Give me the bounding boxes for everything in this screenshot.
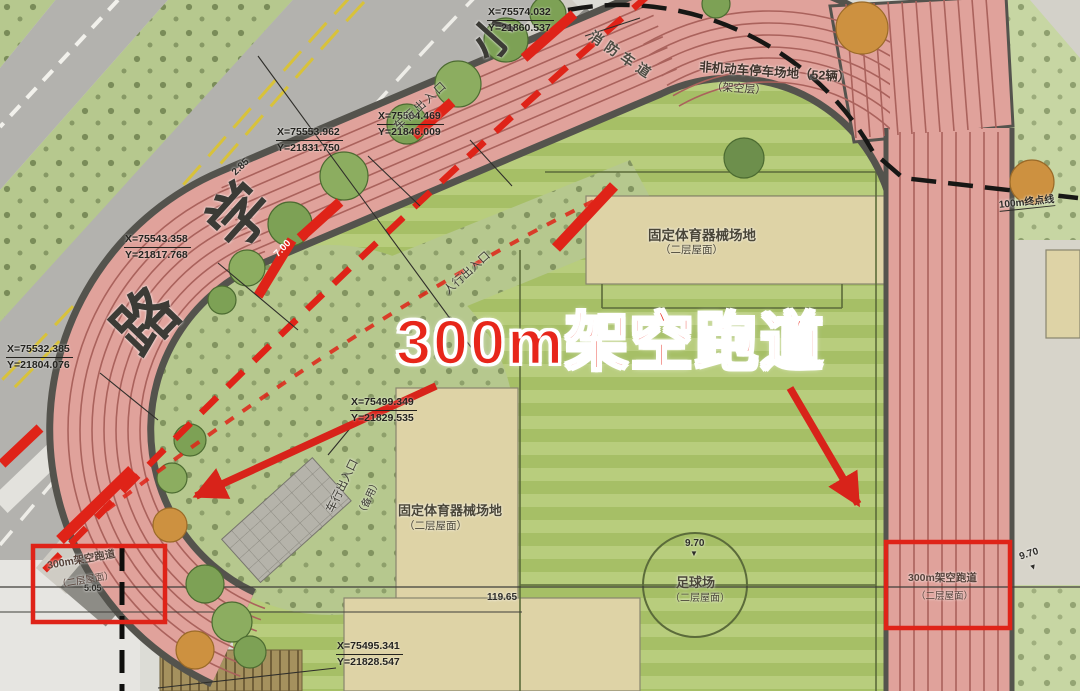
site-plan: 300m架空跑道 小 学 路 X=75574.032Y=21860.537 X=… (0, 0, 1080, 691)
equipment-area-label-top: 固定体育器械场地 (648, 224, 756, 244)
coordinate-callout: X=75532.385Y=21804.076 (6, 343, 73, 372)
dim-field-length: 119.65 (487, 592, 517, 603)
dim-track-width: 5.05 (84, 583, 102, 593)
coordinate-callout: X=75543.358Y=21817.768 (124, 233, 191, 262)
soccer-field-sub: （二层屋面） (670, 589, 730, 604)
field-elevation: 9.70 (685, 538, 704, 549)
sprint-straight (886, 128, 1012, 691)
coordinate-callout: X=75553.962Y=21831.750 (276, 126, 343, 155)
equipment-area-sub-mid: （二层屋面） (404, 518, 467, 533)
annotation-title: 300m架空跑道 (396, 292, 825, 383)
coordinate-callout: X=75574.032Y=21860.537 (487, 6, 554, 35)
equipment-area-label-mid: 固定体育器械场地 (398, 500, 502, 519)
equipment-area-sub-top: （二层屋面） (660, 242, 723, 257)
track-box-label-right: 300m架空跑道 (908, 570, 977, 585)
elevation-marker-icon: ▼ (690, 549, 698, 558)
coordinate-callout: X=75499.349Y=21829.535 (350, 396, 417, 425)
track-box-sub-right: （二层屋面） (916, 588, 973, 602)
coordinate-callout: X=75495.341Y=21828.547 (336, 640, 403, 669)
